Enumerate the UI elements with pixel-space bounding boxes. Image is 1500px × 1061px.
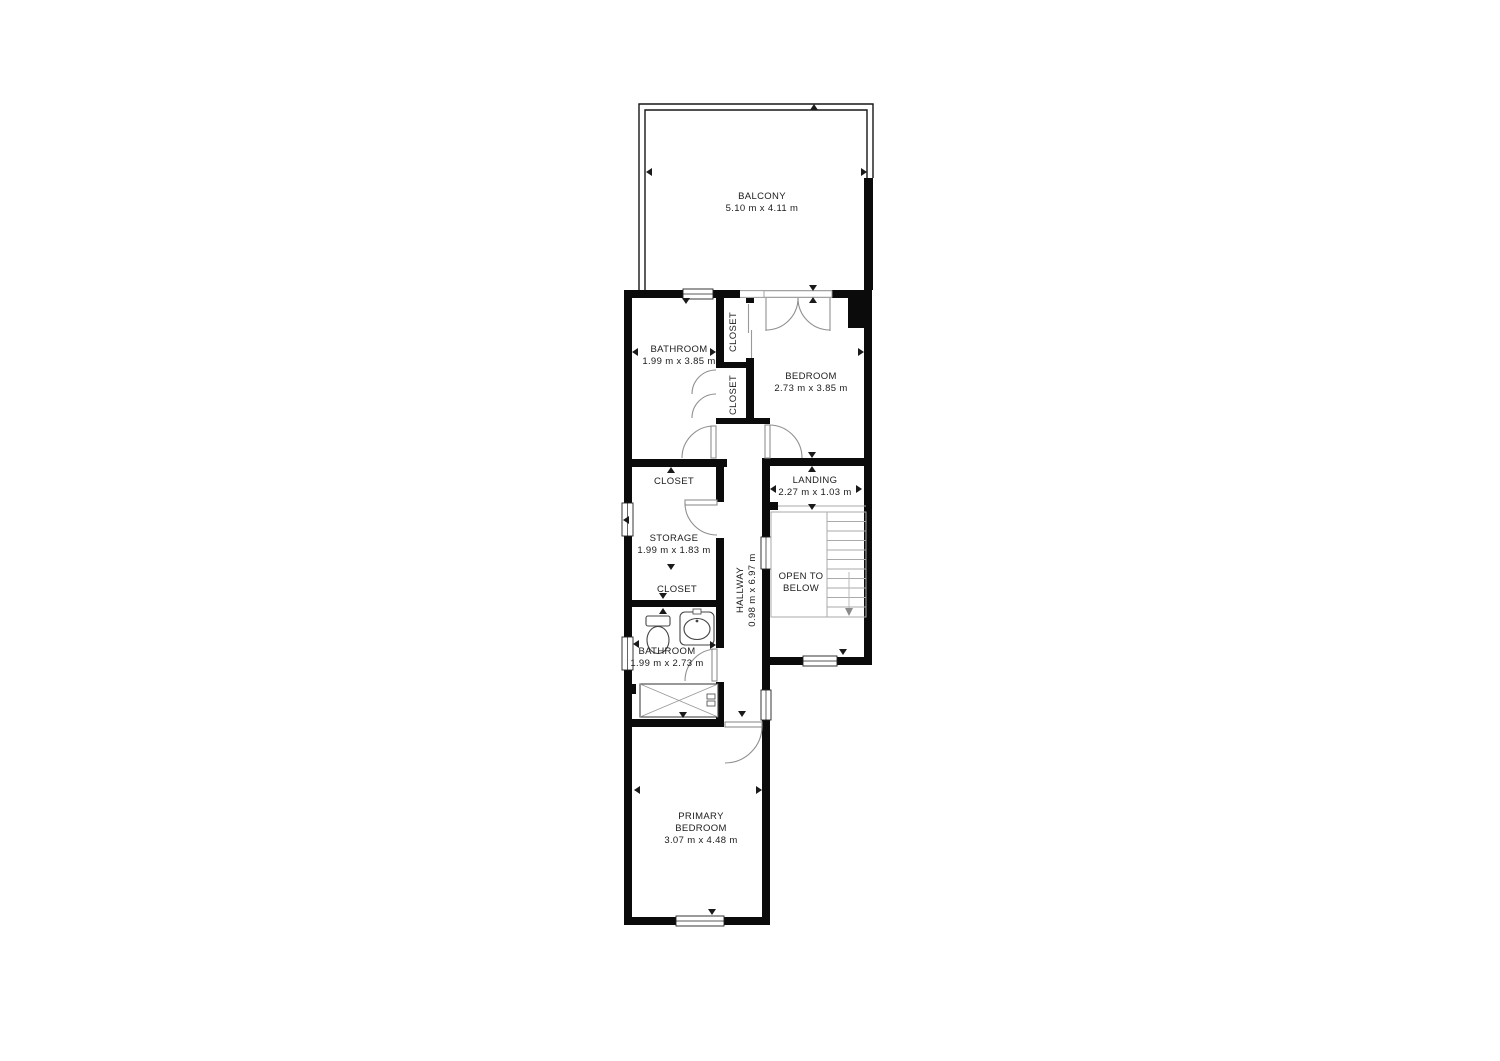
room-name: PRIMARY BEDROOM <box>660 811 742 835</box>
room-name: BALCONY <box>726 191 799 203</box>
room-label-closet-bottom: CLOSET <box>657 584 697 596</box>
room-name: CLOSET <box>654 476 694 488</box>
room-label-hallway: HALLWAY 0.98 m x 6.97 m <box>735 553 759 626</box>
room-name: HALLWAY <box>735 553 747 626</box>
room-dims: 2.27 m x 1.03 m <box>778 487 851 499</box>
room-dims: 0.98 m x 6.97 m <box>747 553 759 626</box>
room-label-primary-bedroom: PRIMARY BEDROOM 3.07 m x 4.48 m <box>660 811 742 847</box>
room-label-balcony: BALCONY 5.10 m x 4.11 m <box>726 191 799 215</box>
room-dims: 1.99 m x 2.73 m <box>630 658 703 670</box>
room-name: BEDROOM <box>774 371 847 383</box>
room-name: OPEN TO BELOW <box>771 571 831 595</box>
room-name: BATHROOM <box>630 646 703 658</box>
room-label-storage: STORAGE 1.99 m x 1.83 m <box>637 533 710 557</box>
room-dims: 1.99 m x 3.85 m <box>642 356 715 368</box>
room-name: STORAGE <box>637 533 710 545</box>
room-label-closet-top: CLOSET <box>654 476 694 488</box>
room-dims: 5.10 m x 4.11 m <box>726 203 799 215</box>
room-label-closet-bathroom: CLOSET <box>728 375 740 415</box>
room-label-closet-bedroom: CLOSET <box>728 312 740 352</box>
room-dims: 2.73 m x 3.85 m <box>774 383 847 395</box>
room-name: CLOSET <box>728 312 740 352</box>
floor-plan-page: BALCONY 5.10 m x 4.11 m BATHROOM 1.99 m … <box>0 0 1500 1061</box>
room-label-landing: LANDING 2.27 m x 1.03 m <box>778 475 851 499</box>
room-name: BATHROOM <box>642 344 715 356</box>
room-dims: 1.99 m x 1.83 m <box>637 545 710 557</box>
room-label-open-to-below: OPEN TO BELOW <box>771 571 831 595</box>
room-name: CLOSET <box>728 375 740 415</box>
room-label-bathroom-lower: BATHROOM 1.99 m x 2.73 m <box>630 646 703 670</box>
room-labels-layer: BALCONY 5.10 m x 4.11 m BATHROOM 1.99 m … <box>0 0 1500 1061</box>
room-dims: 3.07 m x 4.48 m <box>660 835 742 847</box>
room-label-bathroom-upper: BATHROOM 1.99 m x 3.85 m <box>642 344 715 368</box>
room-name: LANDING <box>778 475 851 487</box>
room-name: CLOSET <box>657 584 697 596</box>
room-label-bedroom: BEDROOM 2.73 m x 3.85 m <box>774 371 847 395</box>
